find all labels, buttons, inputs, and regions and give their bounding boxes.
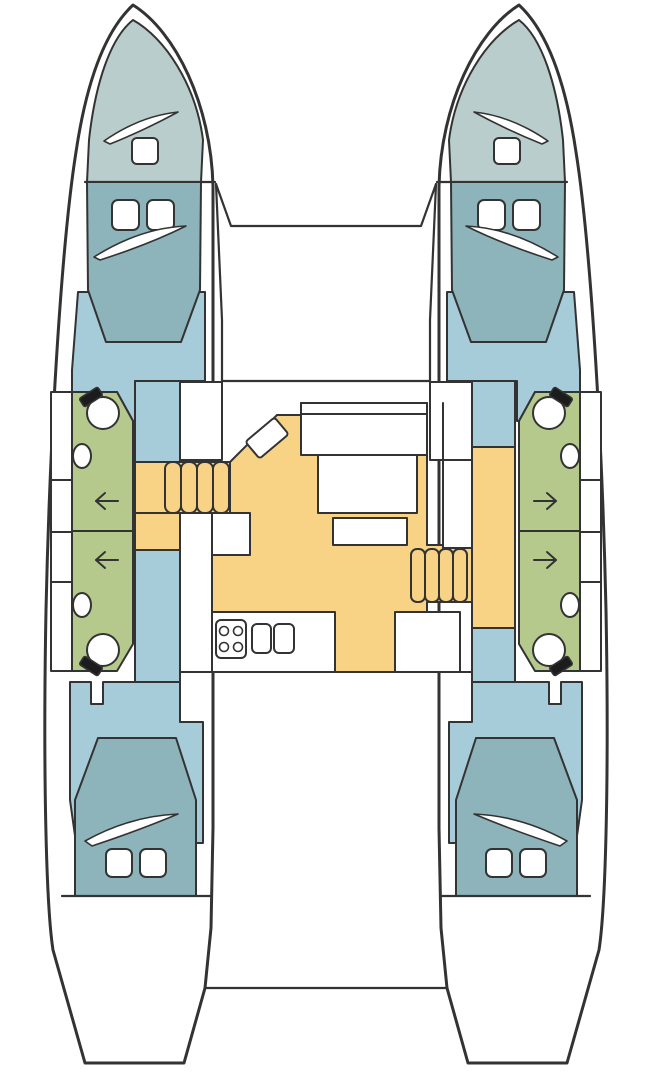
forward-settee <box>301 414 427 455</box>
step <box>411 549 425 602</box>
step <box>439 549 453 602</box>
right-stair-landing <box>472 447 515 628</box>
burner-icon <box>220 643 229 652</box>
burner-icon <box>234 627 243 636</box>
left-corridor-aft <box>135 550 180 682</box>
left-companionway-steps <box>165 462 229 513</box>
cabinet-unit <box>212 513 250 555</box>
step <box>165 462 181 513</box>
catamaran-floor-plan <box>0 0 652 1080</box>
aft-sideboard <box>395 612 460 672</box>
settee-seat <box>333 518 407 545</box>
galley-sink-icon <box>252 624 271 653</box>
inner-hull-edge-right <box>430 184 436 381</box>
step <box>181 462 197 513</box>
step <box>425 549 439 602</box>
foredeck-crossbeam <box>216 184 436 226</box>
step <box>197 462 213 513</box>
step <box>453 549 467 602</box>
right-corridor-aft <box>472 628 515 682</box>
left-corridor-fore <box>135 381 180 462</box>
inner-hull-edge-left <box>216 184 222 381</box>
left-hull <box>45 5 222 1063</box>
right-hull <box>430 5 607 1063</box>
step <box>213 462 229 513</box>
right-companionway-steps <box>411 549 467 602</box>
burner-icon <box>220 627 229 636</box>
burner-icon <box>234 643 243 652</box>
catamaran-floor-plan-canvas: Catamaran yacht deck and accommodation f… <box>0 0 652 1080</box>
galley-sink-icon <box>274 624 294 653</box>
dinette-table <box>318 455 417 513</box>
stove-icon <box>216 620 246 658</box>
right-corridor-fore <box>472 381 515 447</box>
galley <box>212 612 335 672</box>
